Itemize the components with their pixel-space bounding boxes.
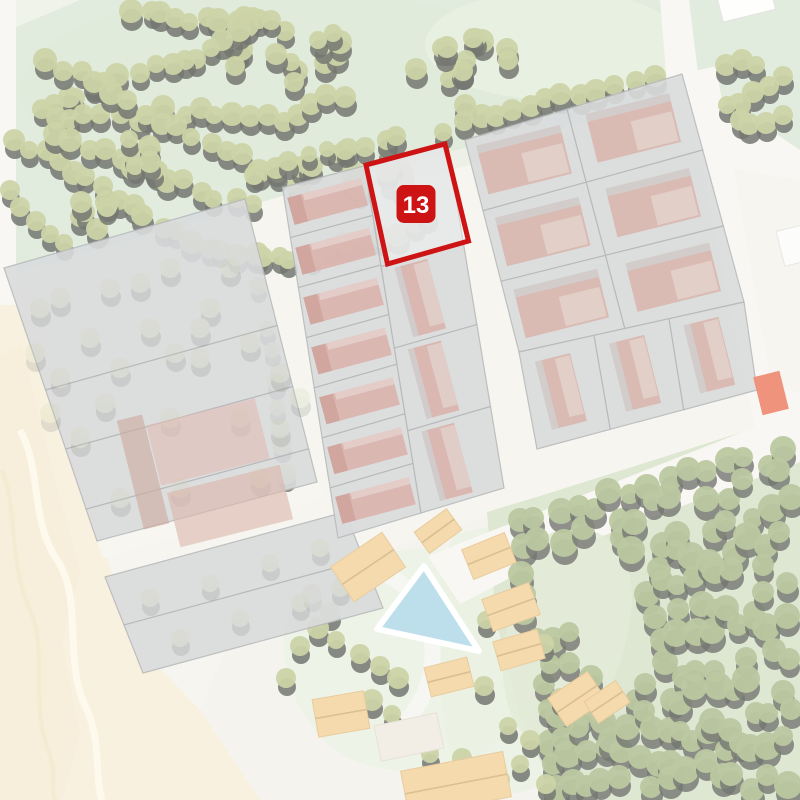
svg-text:13: 13	[403, 192, 430, 219]
